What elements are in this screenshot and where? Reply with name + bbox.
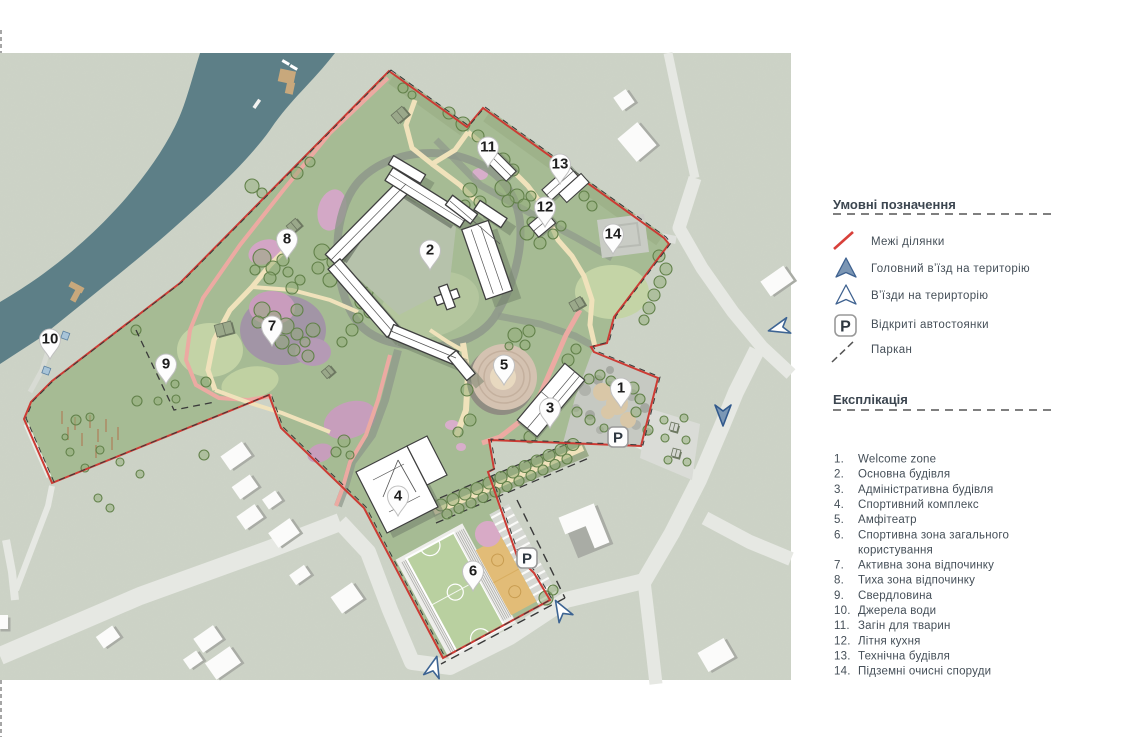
svg-text:12: 12 bbox=[537, 199, 554, 216]
svg-text:Тиха зона відпочинку: Тиха зона відпочинку bbox=[858, 575, 975, 587]
svg-text:Джерела води: Джерела води bbox=[858, 605, 936, 617]
svg-text:3: 3 bbox=[546, 400, 554, 417]
svg-text:9: 9 bbox=[162, 356, 170, 373]
svg-text:8: 8 bbox=[283, 231, 291, 248]
svg-text:13.: 13. bbox=[834, 650, 851, 662]
svg-text:6: 6 bbox=[469, 563, 477, 580]
svg-text:14.: 14. bbox=[834, 666, 851, 678]
svg-text:13: 13 bbox=[552, 156, 569, 173]
svg-text:8.: 8. bbox=[834, 575, 844, 587]
svg-text:Паркан: Паркан bbox=[871, 344, 912, 356]
svg-text:Експлікація: Експлікація bbox=[833, 392, 908, 407]
svg-text:P: P bbox=[613, 430, 623, 447]
svg-text:7.: 7. bbox=[834, 560, 844, 572]
svg-text:Умовні позначення: Умовні позначення bbox=[833, 197, 956, 212]
svg-text:Підземні очисні споруди: Підземні очисні споруди bbox=[858, 666, 991, 678]
svg-text:1: 1 bbox=[617, 380, 625, 397]
svg-text:14: 14 bbox=[605, 226, 622, 243]
svg-text:P: P bbox=[840, 319, 851, 336]
svg-text:користування: користування bbox=[858, 544, 933, 556]
svg-text:7: 7 bbox=[268, 318, 276, 335]
svg-text:12.: 12. bbox=[834, 635, 851, 647]
svg-text:11: 11 bbox=[480, 139, 496, 156]
svg-text:5: 5 bbox=[500, 357, 508, 374]
svg-text:2: 2 bbox=[426, 242, 434, 259]
svg-text:Welcome zone: Welcome zone bbox=[858, 454, 936, 466]
svg-text:10.: 10. bbox=[834, 605, 851, 617]
svg-text:Відкриті автостоянки: Відкриті автостоянки bbox=[871, 319, 989, 331]
svg-text:Активна зона відпочинку: Активна зона відпочинку bbox=[858, 560, 994, 572]
svg-text:10: 10 bbox=[42, 331, 59, 348]
svg-text:4.: 4. bbox=[834, 499, 844, 511]
svg-text:11.: 11. bbox=[834, 620, 850, 632]
svg-text:6.: 6. bbox=[834, 529, 844, 541]
svg-text:2.: 2. bbox=[834, 469, 844, 481]
svg-text:P: P bbox=[522, 551, 532, 568]
svg-text:5.: 5. bbox=[834, 514, 844, 526]
svg-text:Вʼїзди на терирторію: Вʼїзди на терирторію bbox=[871, 290, 988, 302]
svg-text:Загін для тварин: Загін для тварин bbox=[858, 620, 951, 632]
svg-text:Свердловина: Свердловина bbox=[858, 590, 933, 602]
svg-text:9.: 9. bbox=[834, 590, 844, 602]
svg-text:Основна будівля: Основна будівля bbox=[858, 469, 950, 481]
svg-text:1.: 1. bbox=[834, 454, 844, 466]
svg-text:Межі ділянки: Межі ділянки bbox=[871, 236, 945, 248]
svg-text:Спортивна зона загального: Спортивна зона загального bbox=[858, 529, 1009, 541]
svg-text:Літня кухня: Літня кухня bbox=[858, 635, 921, 647]
svg-text:Технічна будівля: Технічна будівля bbox=[858, 650, 950, 662]
svg-text:Головний вʼїзд на територію: Головний вʼїзд на територію bbox=[871, 263, 1030, 275]
svg-text:Спортивний комплекс: Спортивний комплекс bbox=[858, 499, 979, 511]
svg-text:Амфітеатр: Амфітеатр bbox=[858, 514, 917, 526]
svg-text:4: 4 bbox=[394, 488, 403, 505]
svg-text:Адміністративна будівля: Адміністративна будівля bbox=[858, 484, 993, 496]
svg-text:3.: 3. bbox=[834, 484, 844, 496]
